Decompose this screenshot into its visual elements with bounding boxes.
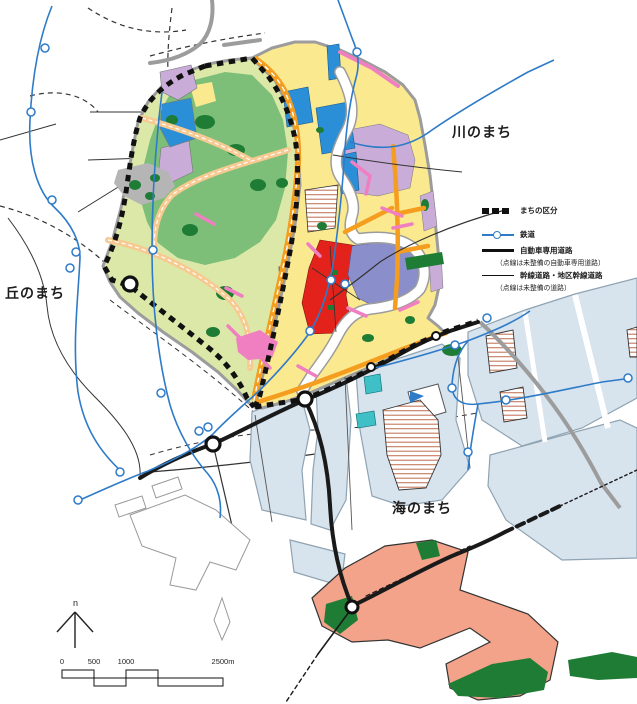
- scale-tick-0: 0: [60, 657, 64, 666]
- scale-tick-2500: 2500m: [212, 657, 235, 666]
- arterial-symbol: [482, 275, 514, 276]
- legend-item-arterial: 幹線道路・地区幹線道路: [482, 270, 637, 281]
- legend-item-railway: 鉄道: [482, 229, 637, 240]
- scale-bar: 0 500 1000 2500m: [0, 652, 280, 697]
- legend-note-arterial: （点線は未整備の道路）: [496, 282, 637, 292]
- legend-label: 自動車専用道路: [520, 245, 573, 256]
- scale-tick-500: 500: [88, 657, 101, 666]
- new-town-area: [312, 540, 637, 700]
- motorway-symbol: [482, 249, 514, 253]
- district-label-hill: 丘のまち: [5, 283, 65, 303]
- legend-label: 鉄道: [520, 229, 535, 240]
- legend-item-motorway: 自動車専用道路: [482, 245, 637, 256]
- legend-label: 幹線道路・地区幹線道路: [520, 270, 603, 281]
- scale-tick-1000: 1000: [118, 657, 135, 666]
- boundary-symbol: [482, 208, 514, 214]
- north-arrow: n: [50, 598, 102, 654]
- legend-item-district-boundary: まちの区分: [482, 205, 637, 216]
- scale-bar-graphic: [0, 652, 280, 697]
- north-label: n: [73, 598, 78, 608]
- planning-map: 川のまち 丘のまち 海のまち まちの区分 鉄道 自動車専用道路 （点線は未整備の…: [0, 0, 637, 704]
- district-label-river: 川のまち: [452, 122, 512, 142]
- map-legend: まちの区分 鉄道 自動車専用道路 （点線は未整備の自動車専用道路） 幹線道路・地…: [482, 205, 637, 295]
- railway-symbol: [482, 231, 514, 239]
- legend-note-motorway: （点線は未整備の自動車専用道路）: [496, 257, 637, 267]
- legend-label: まちの区分: [520, 205, 558, 216]
- district-label-sea: 海のまち: [392, 498, 452, 518]
